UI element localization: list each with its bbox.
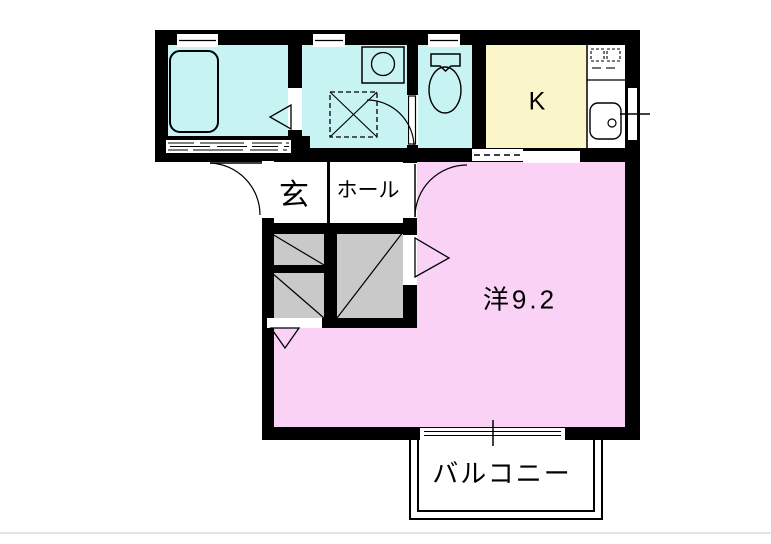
- fixtures-layer: [0, 0, 771, 544]
- toilet-tank: [431, 54, 460, 71]
- stove-burner-right: [607, 49, 620, 61]
- closet-large-diagonal: [337, 232, 403, 318]
- balcony-label: バルコニー: [432, 454, 571, 491]
- washer-drain: [372, 53, 395, 76]
- closet-large-door-triangle: [415, 238, 449, 277]
- entrance-door-arc: [210, 163, 260, 215]
- entrance-label: 玄: [279, 170, 309, 214]
- toilet-bowl: [429, 67, 461, 113]
- closet-bottom-left-diagonal: [272, 273, 324, 318]
- main-room-label: 洋9.2: [483, 280, 557, 317]
- toilet-door-leaf: [409, 96, 416, 144]
- floor-plan: 玄 ホール K 洋9.2 バルコニー: [0, 0, 771, 544]
- toilet-door-arc: [367, 100, 414, 147]
- kitchen-label: K: [529, 88, 546, 117]
- stove-burner-left: [591, 49, 604, 61]
- bathtub: [170, 51, 218, 132]
- closet-bottom-door-triangle: [271, 328, 299, 348]
- closet-top-left-diagonal: [272, 234, 324, 265]
- bathroom-door-triangle: [270, 105, 291, 129]
- hall-room-door-arc: [415, 165, 467, 217]
- hall-label: ホール: [337, 174, 400, 204]
- sink-drain: [608, 119, 616, 127]
- kitchen-sink: [590, 103, 621, 139]
